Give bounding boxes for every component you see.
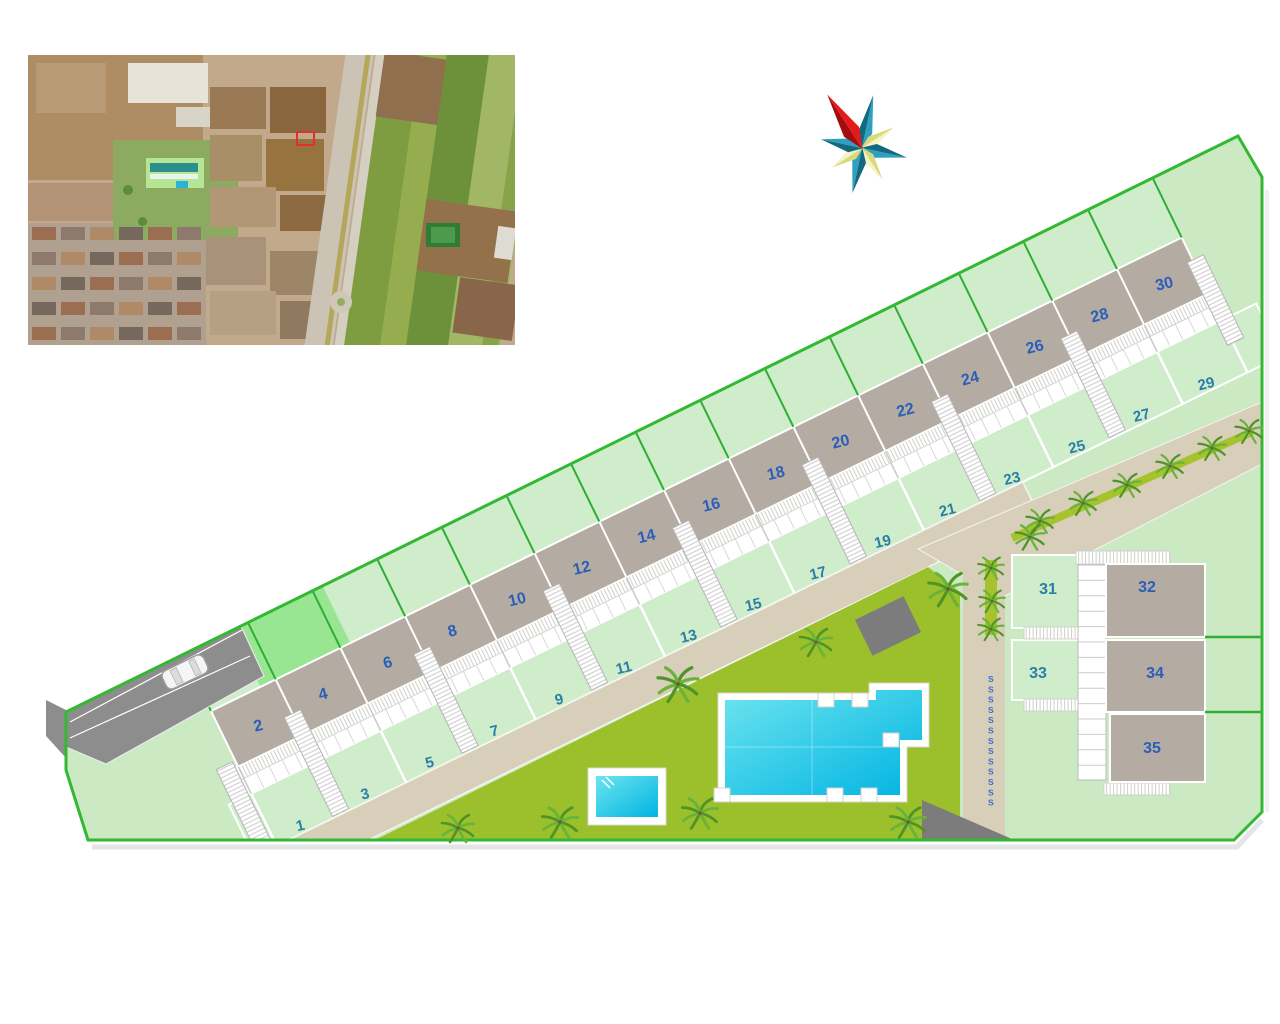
walkway <box>1104 783 1170 795</box>
fence-marker: S <box>988 705 994 715</box>
pool-step-pad <box>883 733 899 747</box>
building-roof <box>1106 564 1205 637</box>
garden-number-label: 31 <box>1039 581 1057 598</box>
pool-step-pad <box>827 788 843 802</box>
fence-marker: S <box>988 756 994 766</box>
driveway-outside-wedge <box>46 700 66 758</box>
pool-step-pad <box>714 788 730 802</box>
pool-step-pad <box>818 693 834 707</box>
fence-marker: S <box>988 787 994 797</box>
service-road <box>963 573 1005 841</box>
compass-rose-icon <box>802 84 918 202</box>
building-number-label: 32 <box>1138 579 1156 596</box>
building-number-label: 35 <box>1143 740 1161 757</box>
kids-pool <box>588 768 666 825</box>
pool-step-pad <box>852 693 868 707</box>
pool-step-pad <box>861 788 877 802</box>
site-plan-drawing: 2468101214161820222426283013579111315171… <box>0 0 1280 1024</box>
fence-marker: S <box>988 746 994 756</box>
main-pool <box>714 683 929 802</box>
fence-marker: S <box>988 695 994 705</box>
fence-line: SSSSSSSSSSSSS <box>988 674 994 808</box>
site-plan-page: 2468101214161820222426283013579111315171… <box>0 0 1280 1024</box>
fence-marker: S <box>988 684 994 694</box>
garden-number-label: 33 <box>1029 665 1047 682</box>
fence-marker: S <box>988 798 994 808</box>
fence-marker: S <box>988 767 994 777</box>
fence-marker: S <box>988 736 994 746</box>
fence-marker: S <box>988 777 994 787</box>
fence-marker: S <box>988 726 994 736</box>
fence-marker: S <box>988 715 994 725</box>
kids-pool-water <box>596 776 658 817</box>
fence-marker: S <box>988 674 994 684</box>
building-number-label: 34 <box>1146 665 1164 682</box>
walkway <box>1076 551 1170 564</box>
